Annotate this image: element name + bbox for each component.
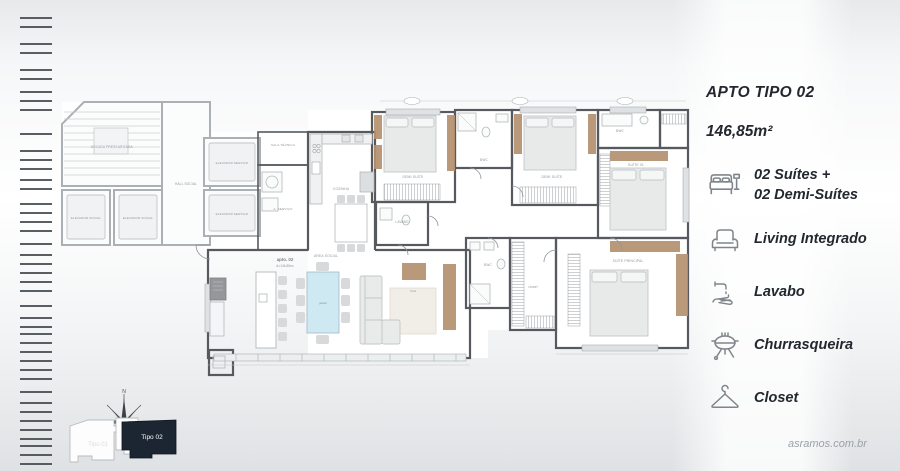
- label-area-servico: A. SERVIÇO: [273, 207, 293, 211]
- feature-closet: Closet: [706, 380, 886, 418]
- label-bwc-shared: BWC: [480, 158, 488, 162]
- bed-icon: [706, 166, 744, 204]
- label-stairs: ESCADA PRESSURIZADA: [91, 145, 133, 149]
- suite01-wardrobe: [610, 151, 668, 161]
- kitchen-table: [335, 204, 367, 242]
- sideboard: [402, 263, 426, 280]
- label-demi-suite-2: DEMI SUÍTE: [542, 175, 563, 179]
- label-kitchen: COZINHA: [333, 187, 350, 191]
- keyplan-adjacent-label: Tipo 01: [88, 442, 108, 448]
- tv-panel: [443, 264, 456, 330]
- label-hall-social: HALL SOCIAL: [175, 182, 197, 186]
- fridge: [360, 172, 374, 192]
- label-unit-area: A=146,85m²: [276, 264, 293, 268]
- hall-social: [162, 102, 210, 245]
- feature-churrasqueira-label: Churrasqueira: [754, 335, 853, 355]
- master-wardrobe-right: [676, 254, 688, 316]
- apartment-type-title: APTO TIPO 02: [706, 84, 886, 102]
- watermark: asramos.com.br: [788, 438, 867, 450]
- feature-list: 02 Suítes + 02 Demi-Suítes Living Integr…: [706, 165, 886, 418]
- label-lavabo: LAVABO: [395, 220, 409, 224]
- handwash-icon: [706, 274, 744, 312]
- label-area-social: ÁREA SOCIAL: [314, 254, 338, 258]
- feature-suites: 02 Suítes + 02 Demi-Suítes: [706, 165, 886, 206]
- label-sala-tecnica: SALA TÉCNICA: [271, 142, 296, 147]
- armchair-icon: [706, 221, 744, 259]
- label-suite-master: SUÍTE PRINCIPAL: [613, 259, 644, 263]
- label-elevator-service-1: ELEVADOR SERVIÇO: [216, 161, 249, 165]
- hanger-icon: [706, 380, 744, 418]
- label-elevator-service-2: ELEVADOR SERVIÇO: [216, 212, 249, 216]
- floor-plan: ESCADA PRESSURIZADA ELEVADOR SOCIAL ELEV…: [50, 88, 698, 388]
- bed-suite-master: [590, 270, 648, 336]
- label-bwc-top: BWC: [616, 129, 624, 133]
- feature-suites-label: 02 Suítes + 02 Demi-Suítes: [754, 165, 858, 206]
- label-demi-suite-1: DEMI SUÍTE: [403, 175, 424, 179]
- master-wardrobe-top: [610, 241, 680, 252]
- label-suite-01: SUÍTE 01: [628, 163, 644, 167]
- label-dining: jantar: [318, 301, 327, 305]
- label-elevator-social-1: ELEVADOR SOCIAL: [71, 216, 101, 220]
- churrasqueira-counter: [210, 278, 226, 336]
- feature-lavabo: Lavabo: [706, 274, 886, 312]
- grill-icon: [706, 327, 744, 365]
- feature-closet-label: Closet: [754, 388, 798, 408]
- kitchen-island: [256, 272, 276, 348]
- keyplan-building-outline: [70, 420, 120, 462]
- feature-living-label: Living Integrado: [754, 229, 867, 249]
- bed-suite-01: [610, 168, 666, 230]
- bed-demi-1: [384, 116, 436, 172]
- bar-stools: [278, 276, 287, 341]
- keyplan-active-label: Tipo 02: [141, 434, 163, 441]
- floorplan-sheet: ESCADA PRESSURIZADA ELEVADOR SOCIAL ELEV…: [0, 0, 900, 471]
- label-unit: apto. 02: [277, 257, 294, 262]
- info-panel: APTO TIPO 02 146,85m² 02 Suítes + 02 Dem…: [706, 84, 886, 418]
- bed-demi-2: [524, 116, 576, 170]
- feature-churrasqueira: Churrasqueira: [706, 327, 886, 365]
- compass-north-label: N: [122, 389, 126, 395]
- label-bwc-master: BWC: [484, 263, 492, 267]
- dimension-line: [380, 98, 686, 105]
- apartment-area: 146,85m²: [706, 123, 886, 141]
- label-sofa: Sofá: [410, 289, 417, 293]
- feature-living: Living Integrado: [706, 221, 886, 259]
- label-elevator-social-2: ELEVADOR SOCIAL: [123, 216, 153, 220]
- building-key-plan: Tipo 01 Tipo 02: [66, 410, 196, 468]
- feature-lavabo-label: Lavabo: [754, 282, 805, 302]
- label-closet: closet: [528, 285, 537, 289]
